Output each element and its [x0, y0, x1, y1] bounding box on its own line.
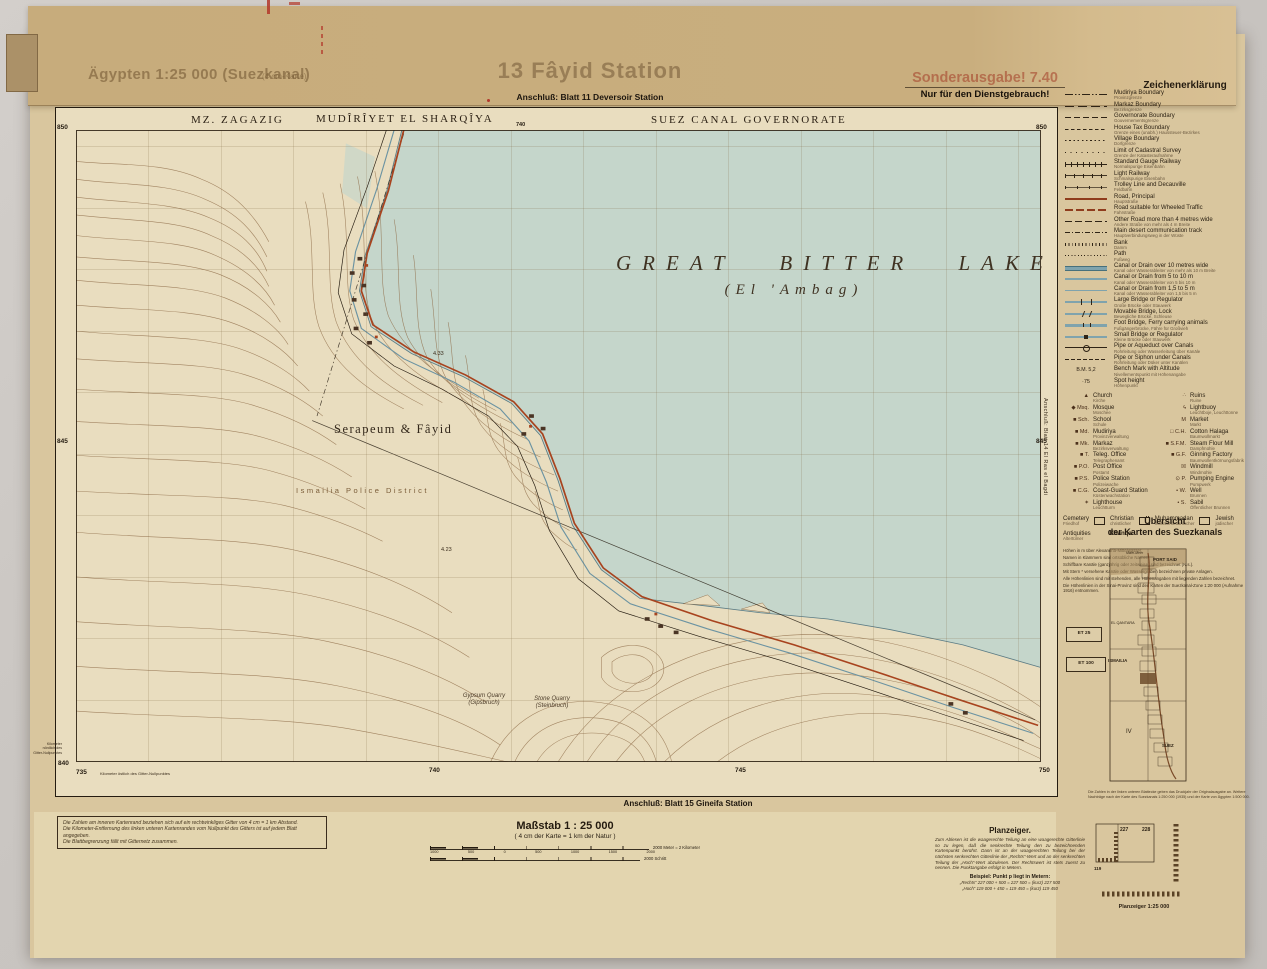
legend-item: Road, Principal Hauptstraße [1063, 194, 1249, 205]
legend-item-text: Bank Damm [1114, 240, 1128, 251]
legend-point-symbol: ■ Mk. Markaz Bezirksverwaltung [1063, 441, 1152, 452]
point-symbol-de: Baumwollentkörnungsfabrik [1190, 459, 1244, 464]
legend-point-symbol: ■ P.S. Police Station Polizeiwache [1063, 476, 1152, 487]
point-symbol-text: Police Station Polizeiwache [1093, 476, 1130, 487]
legend-point-symbol: ■ T. Teleg. Office Telegraphenamt [1063, 452, 1152, 463]
legend-item-text: Bench Mark with Altitude Nivellementspun… [1114, 366, 1186, 377]
legend-item: Canal or Drain from 5 to 10 m Kanal oder… [1063, 274, 1249, 285]
legend-symbol [1063, 344, 1109, 352]
grid-number-bottom: 735 [76, 769, 87, 776]
legend-item: Trolley Line and Decauville Feldbahn [1063, 182, 1249, 193]
et100-box: ET 100 [1066, 657, 1106, 672]
spot-height: 4.33 [433, 351, 444, 357]
point-symbol-de: Moschee [1093, 411, 1114, 416]
legend-symbols-right: ∴ Ruins Ruine ϟ Lightbuoy Leuchtboje, Le… [1160, 393, 1249, 512]
legend-item-text: Road suitable for Wheeled Traffic Fahrst… [1114, 205, 1203, 216]
point-symbol-text: Lighthouse Leuchtturm [1093, 500, 1122, 511]
point-symbol-glyph: ϟ [1160, 405, 1186, 411]
point-symbol-glyph: • S. [1160, 500, 1186, 506]
legend-item: Main desert communication track Hauptver… [1063, 228, 1249, 239]
index-map-title-2: der Karten des Suezkanals [1080, 527, 1250, 538]
point-symbol-glyph: ☒ [1160, 464, 1186, 470]
legend-symbol [1063, 137, 1109, 145]
scale-subtitle: ( 4 cm der Karte = 1 km der Natur ) [430, 833, 700, 840]
legend-item-de: Kanal oder Wasserableiter von mehr als 1… [1114, 269, 1216, 274]
corner-paper-fold [6, 34, 38, 92]
index-label-el-qantara: EL QANTARA [1111, 621, 1135, 625]
point-symbol-glyph: ◆ Msq. [1063, 405, 1089, 411]
legend-item: Governorate Boundary Gouvernementsgrenze [1063, 113, 1249, 124]
legend-item-de: Andere Straße von mehr als 4 m Breite [1114, 223, 1213, 228]
legend-symbol [1063, 91, 1109, 99]
lake-title: GREAT BITTER LAKE [616, 251, 1016, 276]
point-symbol-text: School Schule [1093, 417, 1111, 428]
legend-point-symbol: ϟ Lightbuoy Leuchtboje, Leuchttonne [1160, 405, 1249, 416]
legend-symbol [1063, 229, 1109, 237]
grid-note-line: Die Kilometer-Entfernung des linken unte… [63, 826, 321, 839]
grid-number-top: 740 [516, 122, 525, 128]
legend-item-text: Movable Bridge, Lock Bewegliche Brücke, … [1114, 309, 1172, 320]
legend-item-text: Markaz Boundary Bezirksgrenze [1114, 102, 1161, 113]
legend-symbol [1063, 333, 1109, 341]
point-symbol-glyph: ■ Md. [1063, 429, 1089, 435]
et25-box: ET 25 [1066, 627, 1102, 642]
legend-point-symbol: ⊙ P. Pumping Engine Pumpwerk [1160, 476, 1249, 487]
legend-item-de: Dorfgrenze [1114, 142, 1159, 147]
scale-tick: 0 [504, 850, 506, 854]
point-symbol-de: Küstenwachstation [1093, 494, 1148, 499]
legend-symbol [1063, 310, 1109, 318]
scale-bar-steps-label: 2000 Schritt [644, 856, 666, 861]
legend-item-text: Small Bridge or Regulator Kleine Brücke … [1114, 332, 1183, 343]
planzeiger-example-1: „Rechts“ 227 000 + 500 = 227 500 = (kurz… [935, 880, 1085, 887]
point-symbol-glyph: ■ C.G. [1063, 488, 1089, 494]
legend-point-symbol: ■ C.G. Coast-Guard Station Küstenwachsta… [1063, 488, 1152, 499]
legend-item-text: Trolley Line and Decauville Feldbahn [1114, 182, 1186, 193]
scale-tick: 2000 [647, 850, 655, 854]
point-symbol-text: Markaz Bezirksverwaltung [1093, 441, 1129, 452]
point-symbol-glyph: ∴ [1160, 393, 1186, 399]
place-label-ismailia-police-district: Ismailia Police District [296, 486, 429, 495]
legend-item: Bench Mark with Altitude Nivellementspun… [1063, 366, 1249, 377]
grid-number-left: 850 [57, 124, 68, 131]
admin-label-suez-governorate: SUEZ CANAL GOVERNORATE [651, 114, 847, 126]
grid-number-bottom: 740 [429, 767, 440, 774]
planzeiger-label-227: 227 [1120, 827, 1129, 833]
point-symbol-glyph: □ C.H. [1160, 429, 1186, 435]
scale-title: Maßstab 1 : 25 000 [430, 820, 700, 832]
adjoining-sheet-bottom: Anschluß: Blatt 15 Gineifa Station [558, 799, 818, 808]
legend-item-text: Large Bridge or Regulator Große Brücke o… [1114, 297, 1183, 308]
index-map-title-1: Übersicht [1080, 516, 1250, 527]
index-map-title: Übersicht der Karten des Suezkanals [1080, 516, 1250, 539]
legend-item-text: Road, Principal Hauptstraße [1114, 194, 1155, 205]
legend-symbol [1063, 287, 1109, 295]
point-symbol-de: Ruine [1190, 399, 1205, 404]
legend-item: Path Fußweg [1063, 251, 1249, 262]
spot-height: 4.23 [441, 547, 452, 553]
legend-symbol [1063, 298, 1109, 306]
planzeiger-body: Zum Ablesen ist die waagerechte Teilung … [935, 837, 1085, 871]
legend-item-text: Foot Bridge, Ferry carrying animals Fußg… [1114, 320, 1208, 331]
legend-symbol [1063, 160, 1109, 168]
point-symbol-text: Mudiriya Provinzverwaltung [1093, 429, 1129, 440]
red-tick-marks [321, 26, 323, 58]
legend-point-symbol: • W. Well Brunnen [1160, 488, 1249, 499]
point-symbol-text: Ginning Factory Baumwollentkörnungsfabri… [1190, 452, 1244, 463]
sheet-title: 13 Fâyid Station [380, 58, 800, 84]
legend-symbol [1063, 172, 1109, 180]
point-symbol-glyph: ▲ [1063, 393, 1089, 399]
legend-item-text: Main desert communication track Hauptver… [1114, 228, 1202, 239]
index-map-note: Die Zahlen in der linken unteren Blattec… [1088, 790, 1256, 799]
legend-symbol [1063, 183, 1109, 191]
planzeiger-title: Planzeiger. [935, 826, 1085, 835]
point-symbol-glyph: ✶ [1063, 500, 1089, 506]
point-symbol-de: Polizeiwache [1093, 483, 1130, 488]
legend-symbol [1063, 356, 1109, 364]
point-symbol-de: Baumwollmarkt [1190, 435, 1228, 440]
lake-subtitle: (El 'Ambag) [664, 282, 924, 299]
scale-tick: 1000 [571, 850, 579, 854]
legend-item-de: Feldbahn [1114, 188, 1186, 193]
legend-item: Bank Damm [1063, 240, 1249, 251]
legend-symbol [1063, 149, 1109, 157]
legend-item-de: Fahrstraße [1114, 211, 1203, 216]
planzeiger-label-119: 119 [1094, 866, 1102, 871]
point-symbol-glyph: M [1160, 417, 1186, 423]
legend-item: Markaz Boundary Bezirksgrenze [1063, 102, 1249, 113]
legend-point-symbols: ▲ Church Kirche ◆ Msq. Mosque Moschee [1063, 393, 1249, 512]
point-symbol-de: Telegraphenamt [1093, 459, 1126, 464]
legend-item-text: Mudiriya Boundary Provinzgrenze [1114, 90, 1164, 101]
point-symbol-glyph: ■ P.S. [1063, 476, 1089, 482]
admin-label-mudiriyet: MUDÎRÎYET EL SHARQÎYA [316, 113, 494, 125]
point-symbol-de: Leuchtturm [1093, 506, 1122, 511]
inner-neatline [76, 130, 1041, 762]
legend-item-text: Limit of Cadastral Survey Grenze der Kat… [1114, 148, 1181, 159]
planzeiger-example-2: „Hoch“ 119 000 + 450 = 119 450 = (kurz) … [935, 886, 1085, 893]
point-symbol-text: Coast-Guard Station Küstenwachstation [1093, 488, 1148, 499]
point-symbol-de: Pumpwerk [1190, 483, 1234, 488]
scale-tick: 500 [535, 850, 541, 854]
point-symbol-de: Leuchtboje, Leuchttonne [1190, 411, 1238, 416]
legend-item-de: Rohrleitung oder Wasserleitung über Kanä… [1114, 350, 1200, 355]
label-stone-quarry: Stone Quarry (Steinbruch) [522, 696, 582, 710]
legend-point-symbol: M Market Markt [1160, 417, 1249, 428]
legend-item-de: Nivellementspunkt mit Höhenangabe [1114, 373, 1186, 378]
legend-point-symbol: ■ Sch. School Schule [1063, 417, 1152, 428]
legend-item-de: Gouvernementsgrenze [1114, 119, 1175, 124]
point-symbol-text: Sabil Öffentlicher Brunnen [1190, 500, 1230, 511]
legend-item: Village Boundary Dorfgrenze [1063, 136, 1249, 147]
legend-item-text: Other Road more than 4 metres wide Ander… [1114, 217, 1213, 228]
legend-item-de: Höhenpunkt [1114, 384, 1144, 389]
legend-point-symbol: ☒ Windmill Windmühle [1160, 464, 1249, 475]
point-symbol-glyph: ■ Sch. [1063, 417, 1089, 423]
legend-point-symbol: ■ S.F.M. Steam Flour Mill Dampfmühle [1160, 441, 1249, 452]
legend-item-text: Standard Gauge Railway Normalspurige Eis… [1114, 159, 1181, 170]
index-current-sheet [1140, 673, 1156, 684]
index-label-sea: Mittel-Meer [1126, 551, 1144, 555]
legend-item: Canal or Drain over 10 metres wide Kanal… [1063, 263, 1249, 274]
point-symbol-text: Cotton Halaga Baumwollmarkt [1190, 429, 1228, 440]
map-panel: MZ. ZAGAZIG MUDÎRÎYET EL SHARQÎYA SUEZ C… [55, 107, 1058, 797]
point-symbol-de: Kirche [1093, 399, 1112, 404]
legend-item: Standard Gauge Railway Normalspurige Eis… [1063, 159, 1249, 170]
grid-number-bottom: 750 [1039, 767, 1050, 774]
legend-item: Spot height Höhenpunkt [1063, 378, 1249, 389]
index-label-port-said: PORT SAID [1153, 557, 1177, 562]
admin-label-zagazig: MZ. ZAGAZIG [191, 114, 284, 126]
point-symbol-text: Lightbuoy Leuchtboje, Leuchttonne [1190, 405, 1238, 416]
legend-symbol [1063, 206, 1109, 214]
planzeiger-caption: Planzeiger 1:25 000 [1119, 904, 1170, 910]
restriction-note: Nur für den Dienstgebrauch! [905, 89, 1065, 100]
legend-symbol [1063, 218, 1109, 226]
point-symbol-de: Provinzverwaltung [1093, 435, 1129, 440]
margin-note-east: Kilometer östlich des Gitter-Nullpunktes [100, 771, 170, 776]
legend-point-symbol: ▲ Church Kirche [1063, 393, 1152, 404]
legend-item-text: House Tax Boundary Grenze eines (unabh.)… [1114, 125, 1200, 136]
index-sheet-cells [1138, 557, 1172, 766]
legend-item: Limit of Cadastral Survey Grenze der Kat… [1063, 148, 1249, 159]
scale-bar-steps: 2000 Schritt [430, 856, 700, 861]
legend-item-text: Canal or Drain over 10 metres wide Kanal… [1114, 263, 1216, 274]
point-symbol-de: Schule [1093, 423, 1111, 428]
legend-item: Large Bridge or Regulator Große Brücke o… [1063, 297, 1249, 308]
point-symbol-text: Ruins Ruine [1190, 393, 1205, 404]
series-note: (4 cm-Karte) [262, 72, 306, 81]
index-map: Mittel-Meer PORT SAID EL QANTARA ISMAILI… [1098, 543, 1198, 793]
legend-item-text: Canal or Drain from 1,5 to 5 m Kanal ode… [1114, 286, 1197, 297]
scale-tick: 1000 [430, 850, 438, 854]
legend-symbol [1063, 103, 1109, 111]
legend-item: Other Road more than 4 metres wide Ander… [1063, 217, 1249, 228]
point-symbol-text: Pumping Engine Pumpwerk [1190, 476, 1234, 487]
stone-quarry-de: (Steinbruch) [522, 703, 582, 710]
point-symbol-de: Brunnen [1190, 494, 1207, 499]
legend-item-text: Village Boundary Dorfgrenze [1114, 136, 1159, 147]
legend-point-symbol: ∴ Ruins Ruine [1160, 393, 1249, 404]
stone-quarry-en: Stone Quarry [522, 696, 582, 703]
grid-number-bottom: 745 [735, 767, 746, 774]
grid-notes-box: Die Zahlen am inneren Kartenrand beziehe… [57, 816, 327, 849]
grid-number-left: 840 [58, 760, 69, 767]
index-label-zone: IV [1126, 729, 1132, 735]
legend-symbol [1063, 241, 1109, 249]
legend-item: Mudiriya Boundary Provinzgrenze [1063, 90, 1249, 101]
legend-point-symbol: • S. Sabil Öffentlicher Brunnen [1160, 500, 1249, 511]
point-symbol-glyph: ■ Mk. [1063, 441, 1089, 447]
index-label-suez: SUEZ [1162, 743, 1174, 748]
point-symbol-text: Well Brunnen [1190, 488, 1207, 499]
legend-item-de: Damm [1114, 246, 1128, 251]
place-label-serapeum-fayid: Serapeum & Fâyid [334, 422, 452, 437]
adjoining-sheet-top: Anschluß: Blatt 11 Deversoir Station [380, 92, 800, 102]
legend-item: Road suitable for Wheeled Traffic Fahrst… [1063, 205, 1249, 216]
point-symbol-glyph: ■ T. [1063, 452, 1089, 458]
legend-point-symbol: ■ P.O. Post Office Postamt [1063, 464, 1152, 475]
legend-symbol [1063, 275, 1109, 283]
legend-symbol [1063, 195, 1109, 203]
legend-point-symbol: □ C.H. Cotton Halaga Baumwollmarkt [1160, 429, 1249, 440]
legend-item-de: Große Brücke oder Stauwerk [1114, 304, 1183, 309]
legend-symbol [1063, 321, 1109, 329]
scanned-map-sheet: Ägypten 1:25 000 (Suezkanal) (4 cm-Karte… [0, 0, 1267, 969]
point-symbol-de: Öffentlicher Brunnen [1190, 506, 1230, 511]
point-symbol-text: Steam Flour Mill Dampfmühle [1190, 441, 1233, 452]
legend-item-de: Hauptstraße [1114, 200, 1155, 205]
scale-tick: 1500 [609, 850, 617, 854]
legend-item-text: Spot height Höhenpunkt [1114, 378, 1144, 389]
legend-item-de: Provinzgrenze [1114, 96, 1164, 101]
legend-item-text: Pipe or Siphon under Canals Rohrleitung … [1114, 355, 1191, 366]
legend-item-de: Kleine Brücke oder Stauwerk [1114, 338, 1183, 343]
legend-item-text: Pipe or Aqueduct over Canals Rohrleitung… [1114, 343, 1200, 354]
legend-item: Light Railway Schmalspurige Eisenbahn [1063, 171, 1249, 182]
adjoining-sheet-right: Anschluß: Blatt 14 El Ras el Bagdi [1042, 398, 1048, 528]
legend-item-de: Normalspurige Eisenbahn [1114, 165, 1181, 170]
red-registration-mark [267, 0, 270, 14]
legend-item-de: Hauptverbindungsweg in der Wüste [1114, 234, 1202, 239]
point-symbol-de: Dampfmühle [1190, 447, 1233, 452]
point-symbol-glyph: ■ S.F.M. [1160, 441, 1186, 447]
legend-symbol [1063, 379, 1109, 387]
point-symbol-text: Mosque Moschee [1093, 405, 1114, 416]
red-registration-mark [289, 2, 300, 5]
gypsum-quarry-de: (Gipsbruch) [454, 700, 514, 707]
legend-item: Movable Bridge, Lock Bewegliche Brücke, … [1063, 309, 1249, 320]
scale-bar [430, 857, 640, 861]
legend-item-de: Kanal oder Wasserableiter von 5 bis 10 m [1114, 281, 1195, 286]
point-symbol-de: Postamt [1093, 471, 1122, 476]
scale-block: Maßstab 1 : 25 000 ( 4 cm der Karte = 1 … [430, 820, 700, 861]
legend-point-symbol: ✶ Lighthouse Leuchtturm [1063, 500, 1152, 511]
legend-item: Pipe or Siphon under Canals Rohrleitung … [1063, 355, 1249, 366]
legend-item: Foot Bridge, Ferry carrying animals Fußg… [1063, 320, 1249, 331]
point-symbol-text: Market Markt [1190, 417, 1208, 428]
scale-bar [430, 846, 649, 850]
legend-item-de: Grenze eines (unabh.) Haussteuer-Bezirke… [1114, 131, 1200, 136]
point-symbol-de: Bezirksverwaltung [1093, 447, 1129, 452]
legend-item-de: Fußweg [1114, 258, 1130, 263]
grid-note-line: Die Blattbegrenzung fällt mit Gitternetz… [63, 839, 321, 845]
point-symbol-text: Windmill Windmühle [1190, 464, 1213, 475]
legend-item-de: Kanal oder Wasserableiter von 1,5 bis 5 … [1114, 292, 1197, 297]
scale-ticks: 10005000500100015002000 [430, 850, 655, 854]
legend-item-text: Governorate Boundary Gouvernementsgrenze [1114, 113, 1175, 124]
planzeiger-diagram: 227 228 119 Planzeiger 1:25 000 [1092, 818, 1197, 913]
legend-item-text: Path Fußweg [1114, 251, 1130, 262]
scale-tick: 500 [468, 850, 474, 854]
legend-items: Mudiriya Boundary Provinzgrenze Markaz B… [1063, 90, 1249, 389]
planzeiger-label-228: 228 [1142, 827, 1151, 833]
point-symbol-glyph: ■ G.F. [1160, 452, 1186, 458]
legend-symbol [1063, 367, 1109, 375]
legend-item-de: Schmalspurige Eisenbahn [1114, 177, 1165, 182]
legend-symbol [1063, 252, 1109, 260]
legend-point-symbol: ■ G.F. Ginning Factory Baumwollentkörnun… [1160, 452, 1249, 463]
legend-item: House Tax Boundary Grenze eines (unabh.)… [1063, 125, 1249, 136]
legend-symbol [1063, 114, 1109, 122]
legend-symbol [1063, 264, 1109, 272]
point-symbol-glyph: ■ P.O. [1063, 464, 1089, 470]
scale-bar-metres-label: 2000 Meter = 2 Kilometer [653, 845, 700, 850]
legend-item-de: Bezirksgrenze [1114, 108, 1161, 113]
legend-item-de: Rohrleitung oder Düker unter Kanälen [1114, 361, 1191, 366]
legend-symbols-left: ▲ Church Kirche ◆ Msq. Mosque Moschee [1063, 393, 1152, 512]
legend-item-de: Bewegliche Brücke, Schleuse [1114, 315, 1172, 320]
point-symbol-glyph: • W. [1160, 488, 1186, 494]
margin-note-north: Kilometer nördlich des Gitter-Nullpunkte… [24, 742, 62, 755]
legend-item: Pipe or Aqueduct over Canals Rohrleitung… [1063, 343, 1249, 354]
legend-point-symbol: ◆ Msq. Mosque Moschee [1063, 405, 1152, 416]
legend-item: Small Bridge or Regulator Kleine Brücke … [1063, 332, 1249, 343]
point-symbol-text: Post Office Postamt [1093, 464, 1122, 475]
legend-item-text: Light Railway Schmalspurige Eisenbahn [1114, 171, 1165, 182]
gypsum-quarry-en: Gypsum Quarry [454, 693, 514, 700]
planzeiger-block: Planzeiger. Zum Ablesen ist die waagerec… [935, 826, 1085, 893]
grid-number-left: 845 [57, 438, 68, 445]
label-gypsum-quarry: Gypsum Quarry (Gipsbruch) [454, 693, 514, 707]
index-label-ismailia: ISMAILIA [1108, 658, 1128, 663]
legend-item-de: Grenze der Katasteraufnahme [1114, 154, 1181, 159]
edition-stamp: Sonderausgabe! 7.40 [905, 70, 1065, 88]
point-symbol-glyph: ⊙ P. [1160, 476, 1186, 482]
legend-symbol [1063, 126, 1109, 134]
grid-number-right: 850 [1036, 124, 1047, 131]
legend-item: Canal or Drain from 1,5 to 5 m Kanal ode… [1063, 286, 1249, 297]
legend-point-symbol: ■ Md. Mudiriya Provinzverwaltung [1063, 429, 1152, 440]
legend-item-de: Fußgängerbrücke, Fähre für Großvieh [1114, 327, 1208, 332]
point-symbol-text: Teleg. Office Telegraphenamt [1093, 452, 1126, 463]
point-symbol-text: Church Kirche [1093, 393, 1112, 404]
point-symbol-de: Windmühle [1190, 471, 1213, 476]
point-symbol-de: Markt [1190, 423, 1208, 428]
legend-item-text: Canal or Drain from 5 to 10 m Kanal oder… [1114, 274, 1195, 285]
